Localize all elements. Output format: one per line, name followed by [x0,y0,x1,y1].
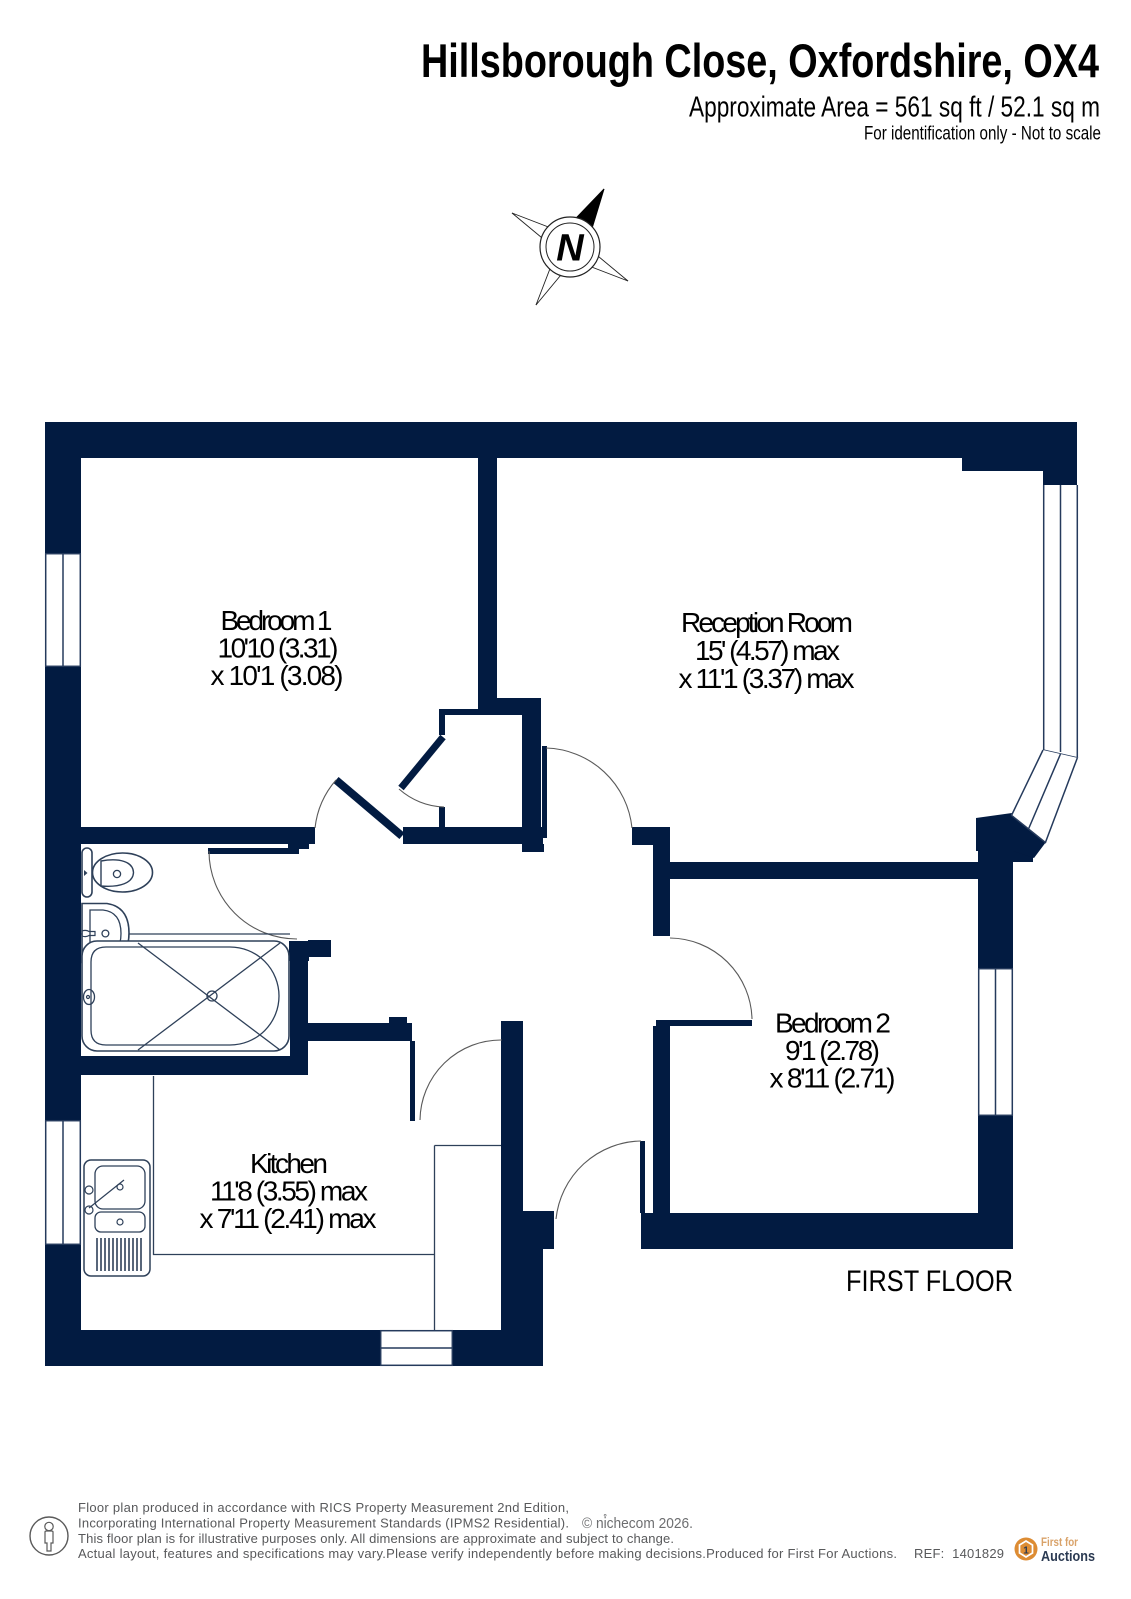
svg-text:Bedroom 1: Bedroom 1 [221,605,333,636]
svg-text:Auctions: Auctions [1041,1548,1095,1565]
svg-text:Incorporating International Pr: Incorporating International Property Mea… [78,1516,569,1531]
svg-text:Approximate Area = 561 sq ft /: Approximate Area = 561 sq ft / 52.1 sq m [689,92,1100,124]
svg-text:Actual layout, features and sp: Actual layout, features and specificatio… [78,1546,897,1561]
svg-text:This floor plan is for illustr: This floor plan is for illustrative purp… [78,1531,674,1546]
svg-text:Hillsborough Close, Oxfordshir: Hillsborough Close, Oxfordshire, OX4 [421,35,1099,88]
svg-text:N: N [556,228,585,270]
svg-text:1: 1 [1023,1546,1029,1557]
svg-text:Bedroom 2: Bedroom 2 [775,1008,891,1039]
svg-text:x 7'11 (2.41) max: x 7'11 (2.41) max [200,1203,377,1234]
svg-text:9'1 (2.78): 9'1 (2.78) [785,1035,880,1066]
svg-text:First for: First for [1041,1535,1078,1549]
svg-text:10'10 (3.31): 10'10 (3.31) [218,633,339,664]
svg-text:x 8'11 (2.71): x 8'11 (2.71) [770,1063,896,1094]
svg-text:11'8 (3.55) max: 11'8 (3.55) max [210,1176,368,1207]
svg-text:x 10'1 (3.08): x 10'1 (3.08) [211,660,344,691]
svg-text:For identification only - Not: For identification only - Not to scale [864,123,1101,145]
svg-text:REF: 1401829: REF: 1401829 [914,1546,1004,1561]
svg-text:15' (4.57) max: 15' (4.57) max [695,635,840,666]
svg-text:FIRST FLOOR: FIRST FLOOR [846,1265,1013,1298]
svg-text:Reception Room: Reception Room [681,607,853,638]
svg-text:x 11'1 (3.37) max: x 11'1 (3.37) max [679,663,855,694]
svg-text:© ni̊checom 2026.: © ni̊checom 2026. [582,1514,693,1532]
svg-text:Kitchen: Kitchen [250,1148,328,1179]
svg-text:Floor plan produced in accorda: Floor plan produced in accordance with R… [78,1500,569,1515]
